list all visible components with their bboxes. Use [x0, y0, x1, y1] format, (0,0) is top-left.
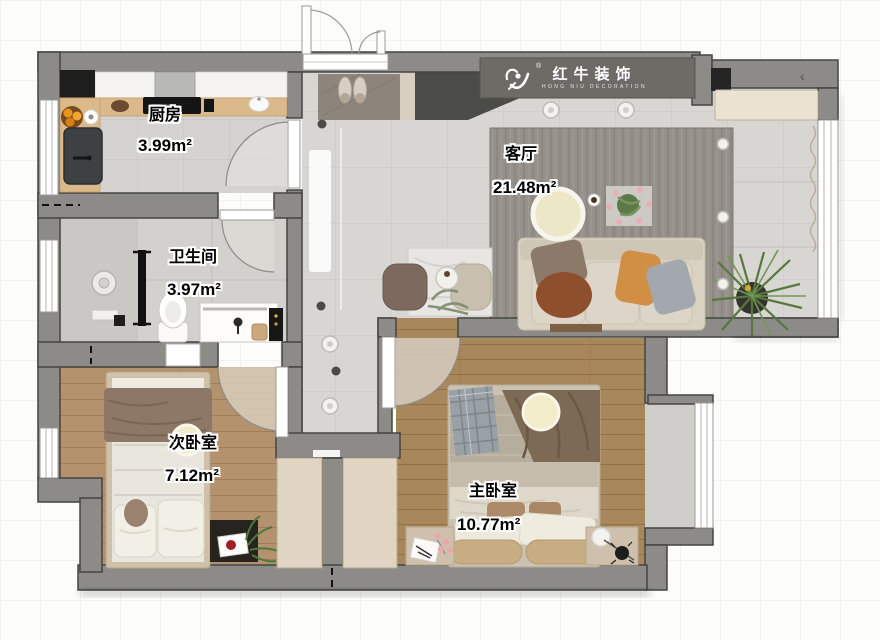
living-area: 21.48m²	[493, 179, 556, 196]
black-column	[711, 68, 731, 91]
coffee-cup	[588, 194, 600, 206]
floorplan-canvas: ‹	[0, 0, 880, 640]
side-table-flowers	[606, 186, 652, 226]
living-label: 客厅	[505, 147, 537, 163]
bull-icon: ®	[503, 65, 533, 93]
dining-chair-left	[383, 264, 427, 310]
bedroom2-label: 次卧室	[169, 436, 217, 452]
sofa-pillow-rust	[536, 272, 592, 318]
kitchen-label: 厨房	[149, 108, 181, 124]
bowl	[111, 100, 129, 112]
bedroom2-window	[40, 428, 58, 478]
wardrobe-master	[343, 458, 397, 568]
sink	[249, 97, 269, 112]
bay-floor	[645, 403, 695, 528]
master-bay-window	[695, 403, 713, 528]
brand-subtitle: HONG NIU DECORATION	[542, 84, 647, 91]
kitchen-area: 3.99m²	[138, 137, 192, 154]
registered-mark: ®	[536, 63, 541, 70]
master-area: 10.77m²	[457, 516, 520, 533]
floorplan-drawing: ‹	[0, 0, 880, 640]
vanity	[200, 303, 283, 342]
master-label: 主卧室	[469, 484, 517, 500]
bed-cushion-brown	[124, 499, 148, 527]
nightstand-left	[406, 527, 454, 565]
bed-bench-1	[450, 540, 522, 564]
wardrobe-second	[277, 458, 322, 568]
brand-texts: 红牛装饰 HONG NIU DECORATION	[542, 67, 647, 91]
plaid-blanket	[449, 386, 500, 456]
wall-notch	[313, 450, 340, 457]
bedroom2-area: 7.12m²	[165, 467, 219, 484]
wall-chevron-mark: ‹	[800, 68, 805, 84]
brand-name: 红牛装饰	[552, 67, 636, 84]
entry-door	[302, 6, 388, 70]
entry-strip	[400, 72, 415, 120]
bathroom-area: 3.97m²	[167, 281, 221, 298]
kitchen-window	[40, 100, 58, 195]
sofa-tray	[550, 324, 602, 332]
kitchen-tall-unit	[60, 70, 95, 100]
bathroom-label: 卫生间	[169, 250, 217, 266]
vent-shaft	[166, 344, 200, 366]
kitchen-mat-appliance	[64, 128, 102, 184]
hall-runner-rug	[309, 150, 331, 272]
range-hood	[155, 72, 195, 98]
master-light	[523, 394, 559, 430]
hall-cabinet	[715, 90, 818, 120]
plate	[84, 110, 98, 124]
fruit-bowl	[61, 106, 83, 128]
laundry-window	[40, 240, 58, 312]
brand-logo: ® 红牛装饰 HONG NIU DECORATION	[503, 61, 693, 97]
sofa	[518, 238, 705, 332]
pendant-lamp	[436, 267, 458, 289]
nightstand-right	[586, 527, 638, 565]
living-window	[818, 120, 838, 318]
toilet	[158, 292, 188, 342]
